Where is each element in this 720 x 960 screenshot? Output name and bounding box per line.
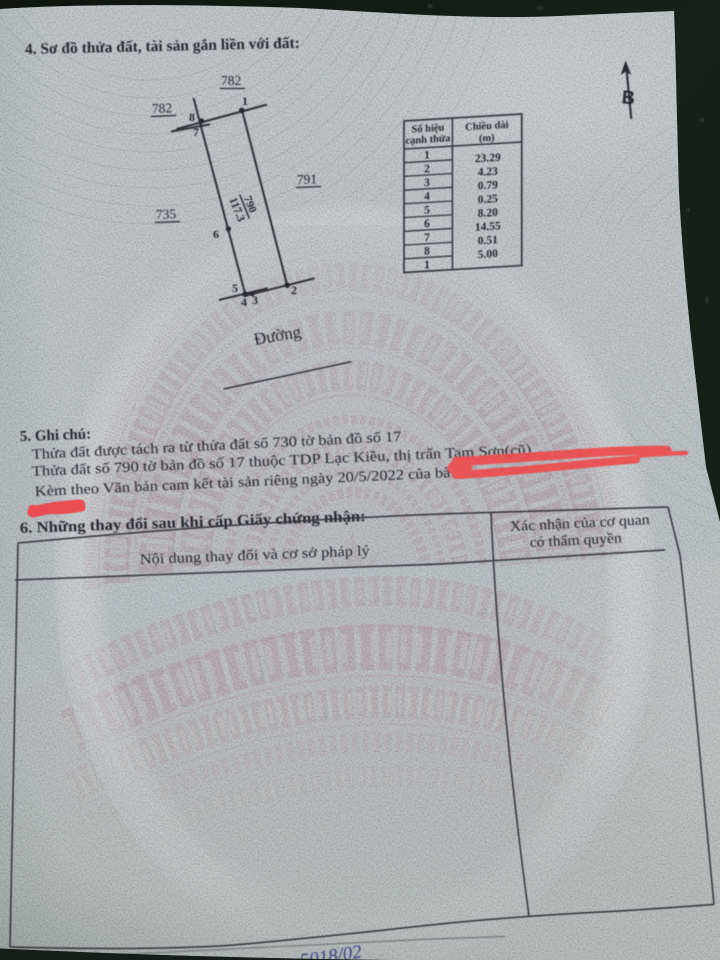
svg-text:8.20: 8.20 [478,207,498,220]
svg-text:782: 782 [152,100,173,116]
svg-text:(m): (m) [479,133,495,145]
svg-text:8: 8 [189,110,195,124]
svg-text:7: 7 [424,232,430,244]
svg-text:1: 1 [424,259,430,271]
svg-text:7: 7 [193,125,199,139]
svg-text:782: 782 [221,73,241,88]
svg-text:5. Ghi chú:: 5. Ghi chú: [20,427,92,445]
svg-text:1: 1 [424,149,430,161]
svg-text:2: 2 [424,163,430,175]
svg-text:6: 6 [213,227,219,241]
svg-text:8: 8 [424,245,430,257]
svg-text:6: 6 [424,218,430,230]
svg-text:5: 5 [424,204,430,216]
svg-text:0.79: 0.79 [478,179,498,192]
svg-text:3: 3 [252,293,258,307]
svg-text:14.55: 14.55 [475,220,501,234]
svg-text:791: 791 [297,171,318,187]
svg-text:2: 2 [291,283,297,297]
svg-text:0.51: 0.51 [478,234,498,247]
svg-text:1: 1 [242,94,248,108]
svg-text:0.25: 0.25 [478,193,498,206]
svg-text:5: 5 [232,281,238,295]
svg-text:4.23: 4.23 [478,166,498,179]
svg-text:3: 3 [424,177,430,189]
svg-text:5.00: 5.00 [478,248,498,261]
svg-text:4: 4 [241,295,247,309]
svg-text:4: 4 [424,191,430,203]
svg-text:23.29: 23.29 [475,152,501,166]
svg-text:735: 735 [156,206,177,222]
